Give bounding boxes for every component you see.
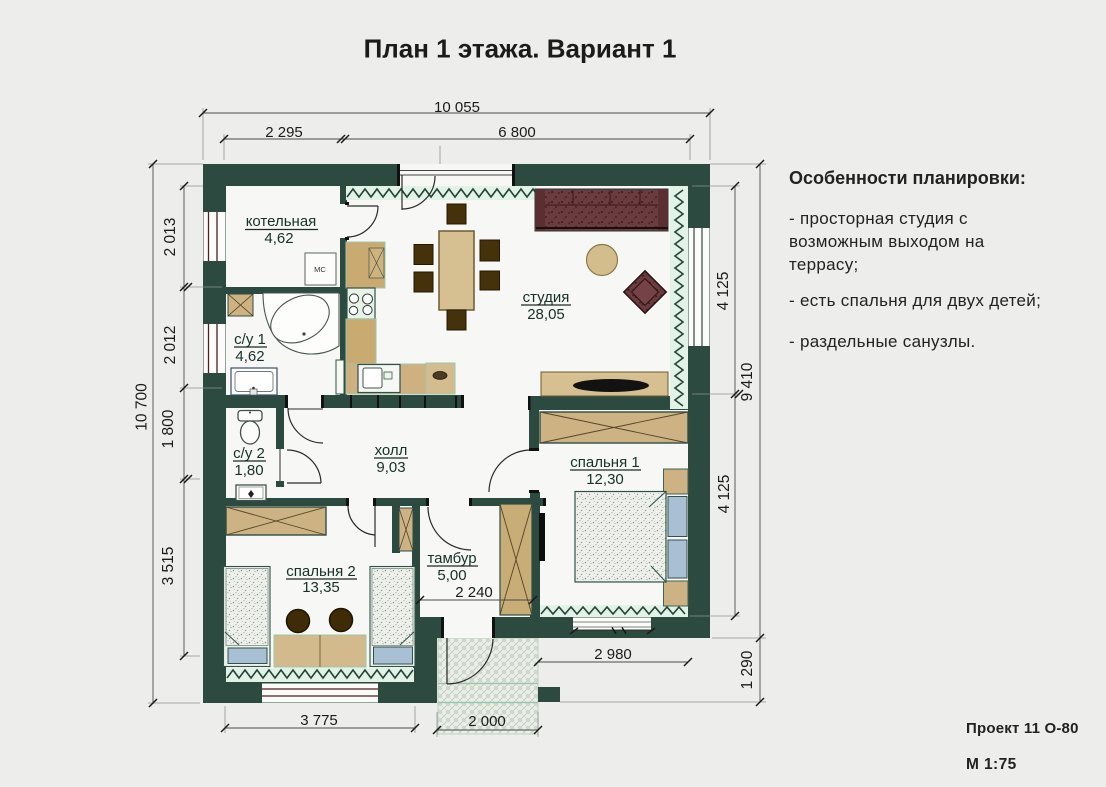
svg-text:Особенности планировки:: Особенности планировки:	[789, 168, 1026, 188]
svg-text:МС: МС	[314, 265, 326, 274]
svg-text:возможным выходом на: возможным выходом на	[789, 232, 985, 251]
svg-text:студия: студия	[523, 289, 570, 306]
svg-text:- есть спальня для двух детей;: - есть спальня для двух детей;	[789, 291, 1041, 310]
svg-text:3 515: 3 515	[160, 547, 177, 586]
svg-text:3 775: 3 775	[300, 712, 338, 729]
svg-text:28,05: 28,05	[527, 306, 565, 323]
svg-text:1 290: 1 290	[739, 650, 756, 689]
svg-text:12,30: 12,30	[586, 471, 624, 488]
svg-text:5,00: 5,00	[437, 567, 466, 584]
svg-text:2 980: 2 980	[594, 646, 632, 663]
svg-text:10 700: 10 700	[134, 383, 151, 431]
svg-text:1,80: 1,80	[234, 462, 263, 479]
svg-text:9 410: 9 410	[739, 362, 756, 401]
svg-text:10 055: 10 055	[434, 99, 480, 116]
svg-text:13,35: 13,35	[302, 579, 340, 596]
svg-text:Проект 11 О-80: Проект 11 О-80	[966, 720, 1079, 737]
svg-text:4 125: 4 125	[715, 272, 732, 311]
svg-text:9,03: 9,03	[376, 459, 405, 476]
svg-text:террасу;: террасу;	[789, 255, 859, 274]
svg-text:2 012: 2 012	[162, 326, 179, 365]
svg-text:План 1 этажа. Вариант 1: План 1 этажа. Вариант 1	[364, 34, 677, 64]
svg-text:с/у 2: с/у 2	[233, 445, 265, 462]
svg-text:4 125: 4 125	[716, 475, 733, 514]
svg-text:6 800: 6 800	[498, 124, 536, 141]
svg-text:спальня 2: спальня 2	[286, 563, 355, 580]
svg-text:4,62: 4,62	[264, 230, 293, 247]
svg-text:с/у 1: с/у 1	[234, 331, 266, 348]
svg-text:тамбур: тамбур	[427, 550, 476, 567]
svg-text:- просторная студия с: - просторная студия с	[789, 209, 968, 228]
svg-text:1 800: 1 800	[160, 409, 177, 448]
svg-text:спальня 1: спальня 1	[570, 454, 639, 471]
svg-text:2 013: 2 013	[162, 218, 179, 257]
svg-text:М 1:75: М 1:75	[966, 756, 1017, 773]
svg-text:котельная: котельная	[246, 213, 317, 230]
svg-text:2 000: 2 000	[468, 713, 506, 730]
svg-text:2 240: 2 240	[455, 584, 493, 601]
svg-text:холл: холл	[375, 442, 408, 459]
svg-text:2 295: 2 295	[265, 124, 303, 141]
svg-text:- раздельные санузлы.: - раздельные санузлы.	[789, 332, 976, 351]
svg-text:4,62: 4,62	[235, 348, 264, 365]
